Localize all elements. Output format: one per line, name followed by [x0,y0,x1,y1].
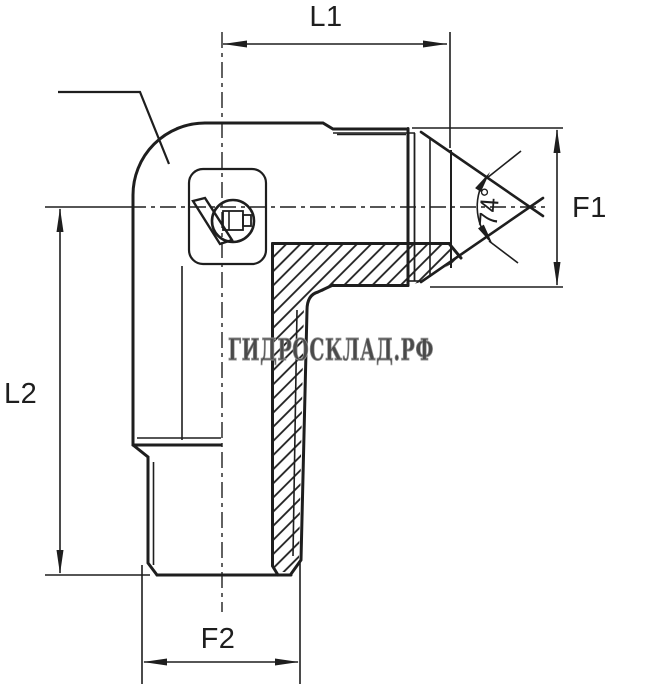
dimension-label-f2: F2 [201,623,236,655]
dimension-label-l2: L2 [4,378,37,410]
site-watermark: ГИДРОСКЛАД.РФ [228,333,434,368]
drawing-canvas: L1 F1 L2 F2 74° ГИДРОСКЛАД.РФ [0,0,663,697]
dimension-label-f1: F1 [572,192,607,224]
technical-drawing: L1 F1 L2 F2 74° ГИДРОСКЛАД.РФ [0,0,663,697]
dimension-label-l1: L1 [309,1,342,33]
angle-label-74: 74° [473,186,506,227]
